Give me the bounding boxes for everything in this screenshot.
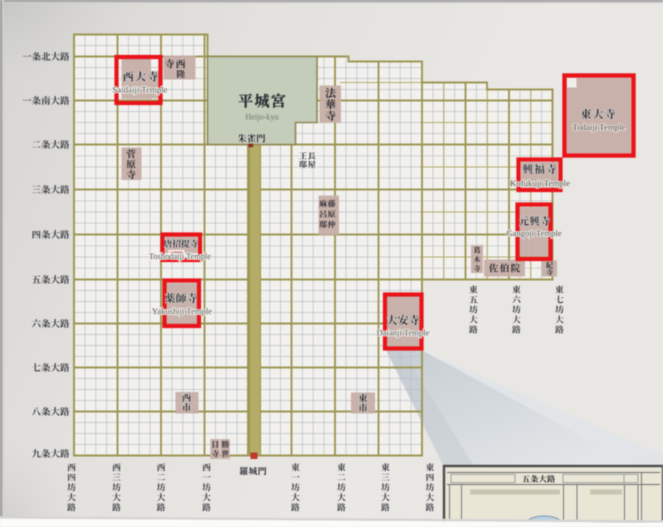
svg-text:Kofukuji Temple: Kofukuji Temple [510, 178, 570, 188]
svg-text:Toshodaiji Temple: Toshodaiji Temple [149, 252, 211, 261]
svg-text:Daianji Temple: Daianji Temple [377, 327, 430, 337]
svg-text:Yakushiji Temple: Yakushiji Temple [152, 306, 212, 316]
svg-text:Saidaiji Temple: Saidaiji Temple [112, 84, 167, 94]
svg-text:Todaiji Temple: Todaiji Temple [572, 122, 625, 132]
svg-text:Heijo-kyu: Heijo-kyu [245, 113, 278, 122]
svg-text:Gangoji Temple: Gangoji Temple [506, 228, 562, 238]
